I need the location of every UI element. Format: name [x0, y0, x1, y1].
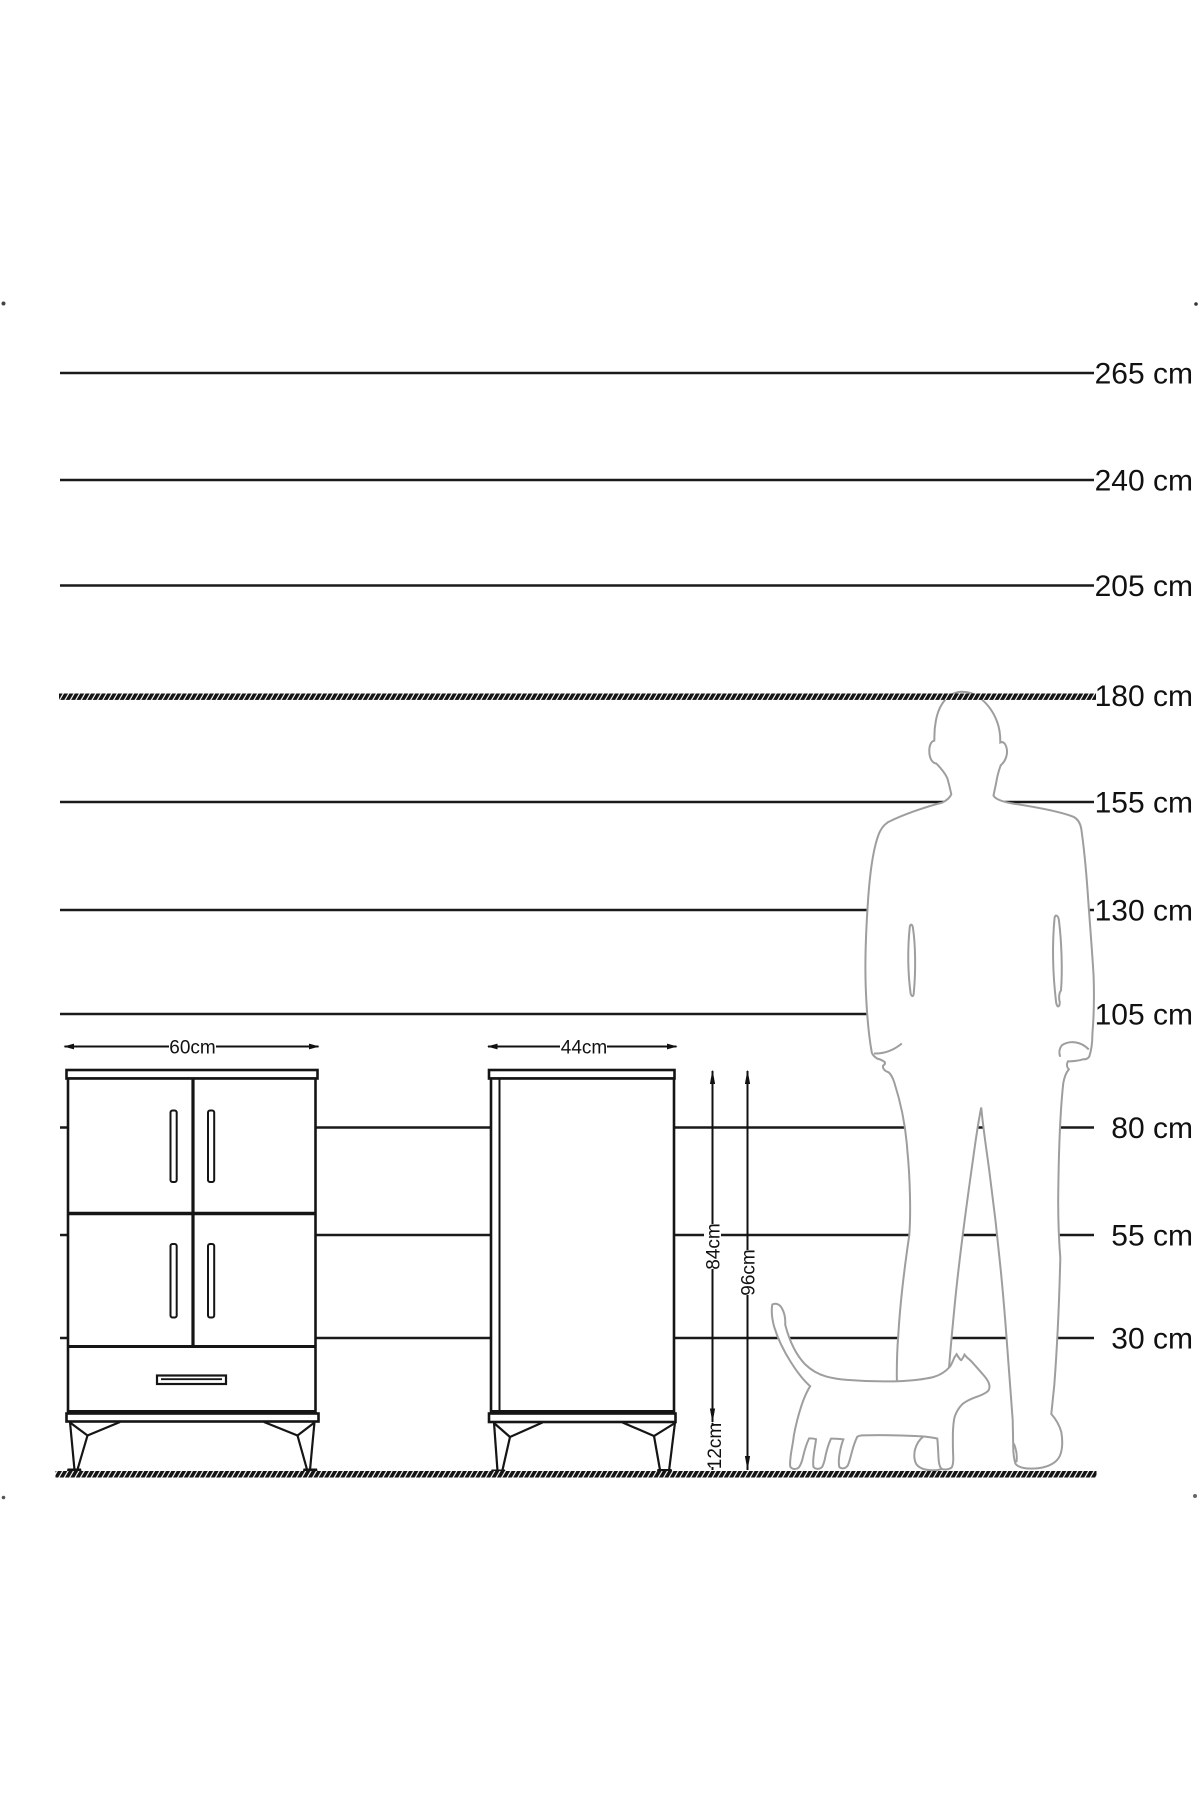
svg-text:155 cm: 155 cm: [1095, 787, 1193, 820]
svg-text:180 cm: 180 cm: [1095, 680, 1193, 713]
svg-text:265 cm: 265 cm: [1095, 358, 1193, 391]
svg-text:80 cm: 80 cm: [1111, 1112, 1193, 1145]
svg-text:30 cm: 30 cm: [1111, 1323, 1193, 1356]
svg-text:96cm: 96cm: [739, 1249, 760, 1295]
svg-text:60cm: 60cm: [169, 1038, 215, 1059]
svg-text:130 cm: 130 cm: [1095, 895, 1193, 928]
svg-text:105 cm: 105 cm: [1095, 999, 1193, 1032]
svg-text:205 cm: 205 cm: [1095, 570, 1193, 603]
svg-text:84cm: 84cm: [704, 1223, 725, 1269]
svg-text:55 cm: 55 cm: [1111, 1220, 1193, 1253]
svg-text:44cm: 44cm: [561, 1038, 607, 1059]
svg-text:240 cm: 240 cm: [1095, 465, 1193, 498]
svg-text:12cm: 12cm: [705, 1423, 726, 1469]
